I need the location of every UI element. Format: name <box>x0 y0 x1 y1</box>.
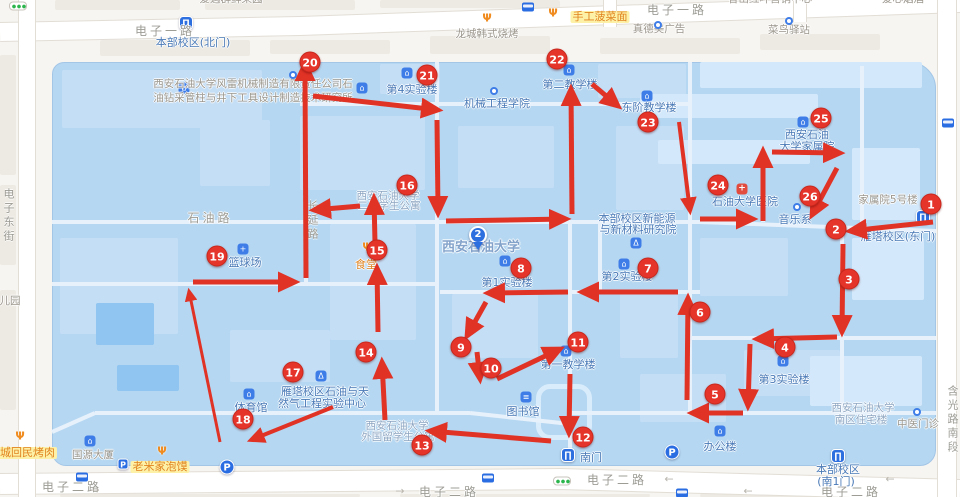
building-block <box>600 38 740 54</box>
bus-stop-icon[interactable] <box>522 3 534 12</box>
poi-label[interactable]: 油钻采管柱与井下工具设计制造技术研究所 <box>153 93 353 105</box>
campus-building-block <box>200 120 270 186</box>
institute-building-icon[interactable]: ⌂ <box>357 83 368 94</box>
traffic-light-icon <box>9 2 27 11</box>
route-marker-3[interactable]: 3 <box>839 269 860 290</box>
south-gate-icon[interactable]: ∏ <box>561 448 575 462</box>
poi-label[interactable]: 第一教学楼 <box>541 359 596 371</box>
poi-label[interactable]: 食堂 <box>355 259 377 271</box>
route-marker-25[interactable]: 25 <box>811 108 832 129</box>
poi-label[interactable]: 老米家泡馍 <box>131 461 190 473</box>
poi-label[interactable]: 篮球场 <box>229 257 262 269</box>
clinic-dot-icon[interactable] <box>913 408 921 416</box>
road-label-vertical: 电子东街 <box>0 188 16 244</box>
east-teaching-building-icon[interactable]: ⌂ <box>642 91 653 102</box>
location-pin[interactable]: 2 <box>469 226 487 250</box>
poi-label[interactable]: 第1实验楼 <box>482 277 533 289</box>
campus-building-block <box>700 62 922 88</box>
building-block <box>0 290 16 410</box>
teaching2-building-icon[interactable]: ⌂ <box>564 65 575 76</box>
route-marker-10[interactable]: 10 <box>481 358 502 379</box>
poi-label[interactable]: 第3实验楼 <box>759 374 810 386</box>
poi-label[interactable]: 南门 <box>580 452 602 464</box>
poi-label[interactable]: 爱遇群鲜果园 <box>200 0 263 6</box>
poi-label[interactable]: 菜鸟驿站 <box>768 25 810 37</box>
route-marker-23[interactable]: 23 <box>638 112 659 133</box>
poi-label[interactable]: 儿园 <box>0 296 21 308</box>
basketball-court-icon[interactable]: + <box>238 244 249 255</box>
poi-label[interactable]: 中医门诊 <box>897 419 939 431</box>
lab2-building-icon[interactable]: ⌂ <box>619 259 630 270</box>
campus-building-block <box>117 365 179 391</box>
map-stage[interactable]: ∏∏∏∏⌂⌂⌂⌂⌂⌂⌂⌂⌂⌂⌂⌂⌂ΔΔ+≡+ΨΨΨΨΨ电子一路电子一路电子二路电… <box>0 0 960 497</box>
paomo-restaurant-icon[interactable]: Ψ <box>157 445 166 458</box>
road-direction-arrow: → <box>90 484 99 497</box>
poi-dot-icon[interactable] <box>785 17 793 25</box>
route-marker-18[interactable]: 18 <box>233 409 254 430</box>
mech-college-dot-icon[interactable] <box>490 87 498 95</box>
poi-label[interactable]: 办公楼 <box>704 441 737 453</box>
kaorou-restaurant-icon[interactable]: Ψ <box>15 430 24 443</box>
bus-stop-icon[interactable] <box>942 119 954 128</box>
poi-label[interactable]: 香山红叶营销中心 <box>728 0 812 6</box>
poi-label[interactable]: 石油大学医院 <box>712 196 778 208</box>
poi-label[interactable]: 第4实验楼 <box>387 84 438 96</box>
noodle-restaurant-icon[interactable]: Ψ <box>548 7 557 20</box>
route-marker-4[interactable]: 4 <box>775 337 796 358</box>
lab1-building-icon[interactable]: ⌂ <box>500 256 511 267</box>
route-marker-1[interactable]: 1 <box>921 194 942 215</box>
route-marker-26[interactable]: 26 <box>800 186 821 207</box>
campus-building-block <box>810 356 922 406</box>
poi-label[interactable]: 家属院5号楼 <box>858 195 917 207</box>
building-block <box>270 40 390 54</box>
bus-stop-icon[interactable] <box>482 474 494 483</box>
route-marker-2[interactable]: 2 <box>826 219 847 240</box>
hospital-icon[interactable]: + <box>737 184 748 195</box>
road-direction-arrow: ← <box>664 473 673 486</box>
road-label-vertical: 含光路南段 <box>944 385 960 455</box>
poi-label[interactable]: 第二教学楼 <box>543 79 598 91</box>
location-pin-tail <box>473 242 483 250</box>
poi-label[interactable]: 南区住宅楼 <box>835 415 888 427</box>
route-marker-5[interactable]: 5 <box>705 384 726 405</box>
poi-label[interactable]: 西安石油大学 <box>832 403 895 415</box>
campus-building-block <box>852 238 924 300</box>
poi-label[interactable]: 本部校区(北门) <box>156 37 231 49</box>
route-marker-19[interactable]: 19 <box>207 246 228 267</box>
parking-icon[interactable]: P <box>220 460 235 475</box>
petro-gas-lab-icon[interactable]: Δ <box>316 371 327 382</box>
route-marker-9[interactable]: 9 <box>451 337 472 358</box>
road-direction-arrow: ← <box>885 473 894 486</box>
route-marker-15[interactable]: 15 <box>367 240 388 261</box>
poi-label[interactable]: 手工菠菜面 <box>571 11 630 23</box>
poi-label[interactable]: 龙城韩式烧烤 <box>456 29 519 41</box>
campus-building-block <box>616 126 684 210</box>
road-direction-arrow: ← <box>743 485 752 497</box>
route-marker-16[interactable]: 16 <box>397 175 418 196</box>
campus-building-block <box>620 294 678 358</box>
route-marker-14[interactable]: 14 <box>356 342 377 363</box>
poi-label[interactable]: (南1门) <box>817 476 855 488</box>
music-dept-dot-icon[interactable] <box>793 203 801 211</box>
poi-label[interactable]: 图书馆 <box>507 406 540 418</box>
route-marker-13[interactable]: 13 <box>412 435 433 456</box>
route-marker-20[interactable]: 20 <box>300 52 321 73</box>
route-marker-11[interactable]: 11 <box>568 332 589 353</box>
parking-icon[interactable]: P <box>665 445 680 460</box>
building-block <box>0 55 16 175</box>
road-label: 电子一路 <box>647 4 707 17</box>
route-marker-21[interactable]: 21 <box>417 65 438 86</box>
bbq-restaurant-icon[interactable]: Ψ <box>482 12 491 25</box>
library-icon[interactable]: ≡ <box>521 392 532 403</box>
poi-label[interactable]: 音乐系 <box>779 214 812 226</box>
route-marker-24[interactable]: 24 <box>708 175 729 196</box>
office-building-icon[interactable]: ⌂ <box>715 426 726 437</box>
poi-label[interactable]: 雁塔校区(东门) <box>861 231 936 243</box>
traffic-light-icon <box>553 477 571 486</box>
route-marker-12[interactable]: 12 <box>573 427 594 448</box>
route-marker-22[interactable]: 22 <box>547 49 568 70</box>
bus-stop-icon[interactable] <box>676 489 688 497</box>
road-label-vertical: 长延路 <box>304 200 320 242</box>
poi-label[interactable]: 二号学生公寓 <box>358 201 421 213</box>
poi-label[interactable]: 爱心烟酒 <box>882 0 924 6</box>
route-marker-6[interactable]: 6 <box>690 302 711 323</box>
route-marker-8[interactable]: 8 <box>511 258 532 279</box>
new-energy-lab-icon[interactable]: Δ <box>631 238 642 249</box>
poi-label[interactable]: 大学家属院 <box>780 141 835 153</box>
guoyuan-building-icon[interactable]: ⌂ <box>85 436 96 447</box>
parking-icon[interactable]: P <box>118 459 129 470</box>
poi-label[interactable]: 老城回民烤肉 <box>0 447 57 459</box>
south1-gate-icon[interactable]: ∏ <box>831 449 845 463</box>
poi-label[interactable]: 机械工程学院 <box>464 98 530 110</box>
poi-label[interactable]: 国源大厦 <box>72 450 114 462</box>
lab4-building-icon[interactable]: ⌂ <box>402 68 413 79</box>
route-marker-7[interactable]: 7 <box>638 258 659 279</box>
road-label: 电子二路 <box>419 486 479 497</box>
poi-label[interactable]: 与新材料研究院 <box>600 224 677 236</box>
bus-stop-icon[interactable] <box>76 473 88 482</box>
poi-dot-icon[interactable] <box>654 21 662 29</box>
poi-dot-icon[interactable] <box>289 71 297 79</box>
road-label: 石油路 <box>187 212 232 225</box>
campus-building-block <box>852 148 920 220</box>
road-direction-arrow: → <box>395 485 404 497</box>
campus-building-block <box>700 238 788 296</box>
poi-label[interactable]: 然气工程实验中心 <box>278 398 366 410</box>
family-compound-building-icon[interactable]: ⌂ <box>798 117 809 128</box>
gym-icon[interactable]: ⌂ <box>244 389 255 400</box>
poi-label[interactable]: 西安石油大学风雷机械制造有限责任公司石 <box>153 79 353 91</box>
building-block <box>55 0 180 10</box>
road-label: 电子二路 <box>587 474 647 487</box>
location-pin-number: 2 <box>469 226 487 244</box>
campus-building-block <box>96 303 154 345</box>
campus-building-block <box>458 126 554 188</box>
route-marker-17[interactable]: 17 <box>283 362 304 383</box>
